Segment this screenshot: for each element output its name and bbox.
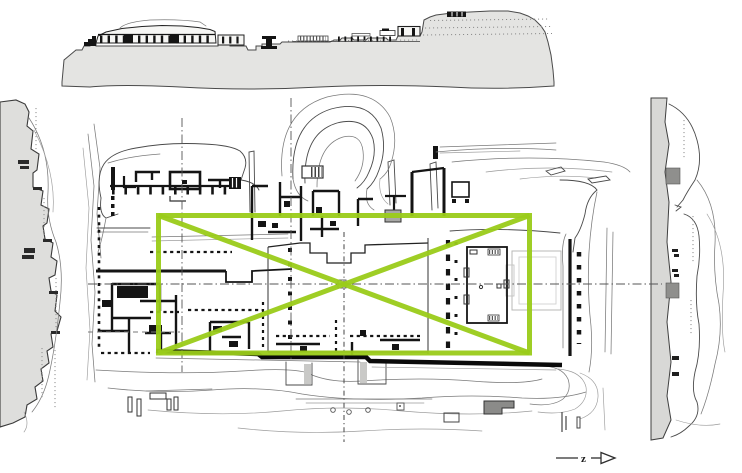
archaeological-site-figure: z xyxy=(0,0,742,473)
left-slope-mass xyxy=(0,100,61,427)
west-wing-rooms xyxy=(99,207,263,353)
elevation-summit-building xyxy=(447,12,466,18)
north-central-rooms xyxy=(252,182,373,241)
site-plan-drawing xyxy=(83,94,662,442)
elevation-altar xyxy=(261,36,277,49)
left-section-drawing xyxy=(0,100,61,432)
upper-west-room-cluster xyxy=(110,167,241,216)
north-arrow: z xyxy=(556,453,615,466)
hill-mass xyxy=(62,11,554,89)
top-elevation-drawing xyxy=(62,11,554,89)
right-slope-mass xyxy=(651,98,671,440)
site-drawing-canvas: z xyxy=(0,0,742,473)
north-arrow-head xyxy=(601,453,615,464)
east-court xyxy=(450,229,579,356)
south-slope-contours xyxy=(96,360,598,432)
north-arrow-label: z xyxy=(581,453,586,465)
elevation-buildings-left xyxy=(84,20,244,46)
right-section-drawing xyxy=(651,98,725,440)
